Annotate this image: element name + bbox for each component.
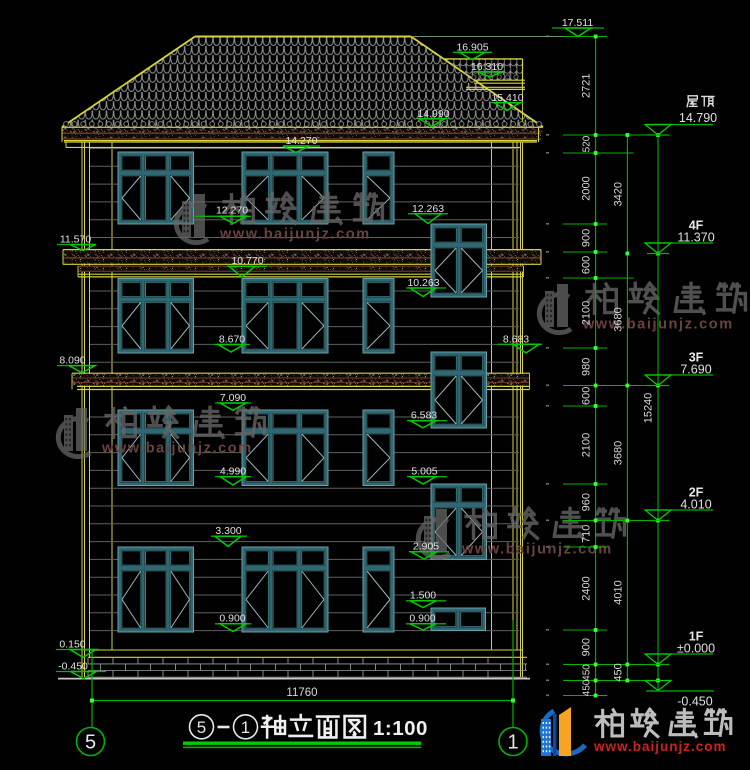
svg-text:3420: 3420 xyxy=(613,182,625,206)
svg-text:450: 450 xyxy=(613,663,625,681)
svg-text:2721: 2721 xyxy=(581,74,593,98)
svg-text:3680: 3680 xyxy=(613,307,625,331)
svg-text:2100: 2100 xyxy=(581,433,593,457)
svg-text:11760: 11760 xyxy=(286,687,317,699)
svg-text:4010: 4010 xyxy=(613,580,625,604)
svg-text:www.baijunjz.com: www.baijunjz.com xyxy=(101,441,253,457)
svg-text:www.baijunjz.com: www.baijunjz.com xyxy=(593,739,727,754)
svg-text:10.770: 10.770 xyxy=(231,255,263,267)
svg-text:0.900: 0.900 xyxy=(219,613,245,625)
svg-text:710: 710 xyxy=(581,525,593,543)
svg-text:14.790: 14.790 xyxy=(679,111,717,125)
svg-text:450: 450 xyxy=(582,679,593,696)
svg-text:5.005: 5.005 xyxy=(411,466,437,478)
svg-text:520: 520 xyxy=(582,135,593,152)
svg-text:0.150: 0.150 xyxy=(59,639,85,651)
svg-text:450: 450 xyxy=(582,664,593,681)
svg-text:5: 5 xyxy=(85,732,96,754)
svg-text:8.090: 8.090 xyxy=(59,355,85,367)
svg-text:-0.450: -0.450 xyxy=(58,661,88,673)
svg-text:10.263: 10.263 xyxy=(407,277,439,289)
svg-text:11.570: 11.570 xyxy=(60,234,91,246)
svg-text:3680: 3680 xyxy=(613,441,625,465)
svg-text:3.300: 3.300 xyxy=(215,525,241,537)
svg-text:12.270: 12.270 xyxy=(216,205,248,217)
svg-text:±0.000: ±0.000 xyxy=(677,642,715,656)
svg-text:980: 980 xyxy=(581,358,593,376)
svg-text:900: 900 xyxy=(581,638,593,656)
svg-text:2400: 2400 xyxy=(581,576,593,600)
svg-text:17.511: 17.511 xyxy=(562,17,593,29)
svg-text:2.905: 2.905 xyxy=(413,541,439,553)
svg-text:4.010: 4.010 xyxy=(680,498,711,512)
svg-text:7.090: 7.090 xyxy=(220,392,246,404)
svg-text:14.270: 14.270 xyxy=(285,135,317,147)
svg-text:4.990: 4.990 xyxy=(220,466,246,478)
svg-text:8.670: 8.670 xyxy=(219,334,245,346)
svg-text:11.370: 11.370 xyxy=(677,231,714,245)
svg-text:15240: 15240 xyxy=(643,393,655,424)
svg-text:1: 1 xyxy=(507,732,518,754)
svg-text:1: 1 xyxy=(241,718,250,737)
svg-text:2000: 2000 xyxy=(581,176,593,200)
svg-text:6.583: 6.583 xyxy=(411,410,437,422)
svg-text:1:100: 1:100 xyxy=(373,717,428,740)
svg-text:0.900: 0.900 xyxy=(409,613,435,625)
svg-text:960: 960 xyxy=(581,493,593,511)
svg-text:2100: 2100 xyxy=(581,301,593,325)
svg-text:www.baijunjz.com: www.baijunjz.com xyxy=(219,227,371,243)
svg-text:7.690: 7.690 xyxy=(680,363,711,377)
svg-text:-0.450: -0.450 xyxy=(677,695,712,709)
svg-text:1.500: 1.500 xyxy=(410,590,436,602)
svg-text:900: 900 xyxy=(581,229,593,247)
svg-text:600: 600 xyxy=(581,256,593,274)
svg-text:600: 600 xyxy=(581,387,593,405)
svg-text:5: 5 xyxy=(197,718,206,737)
